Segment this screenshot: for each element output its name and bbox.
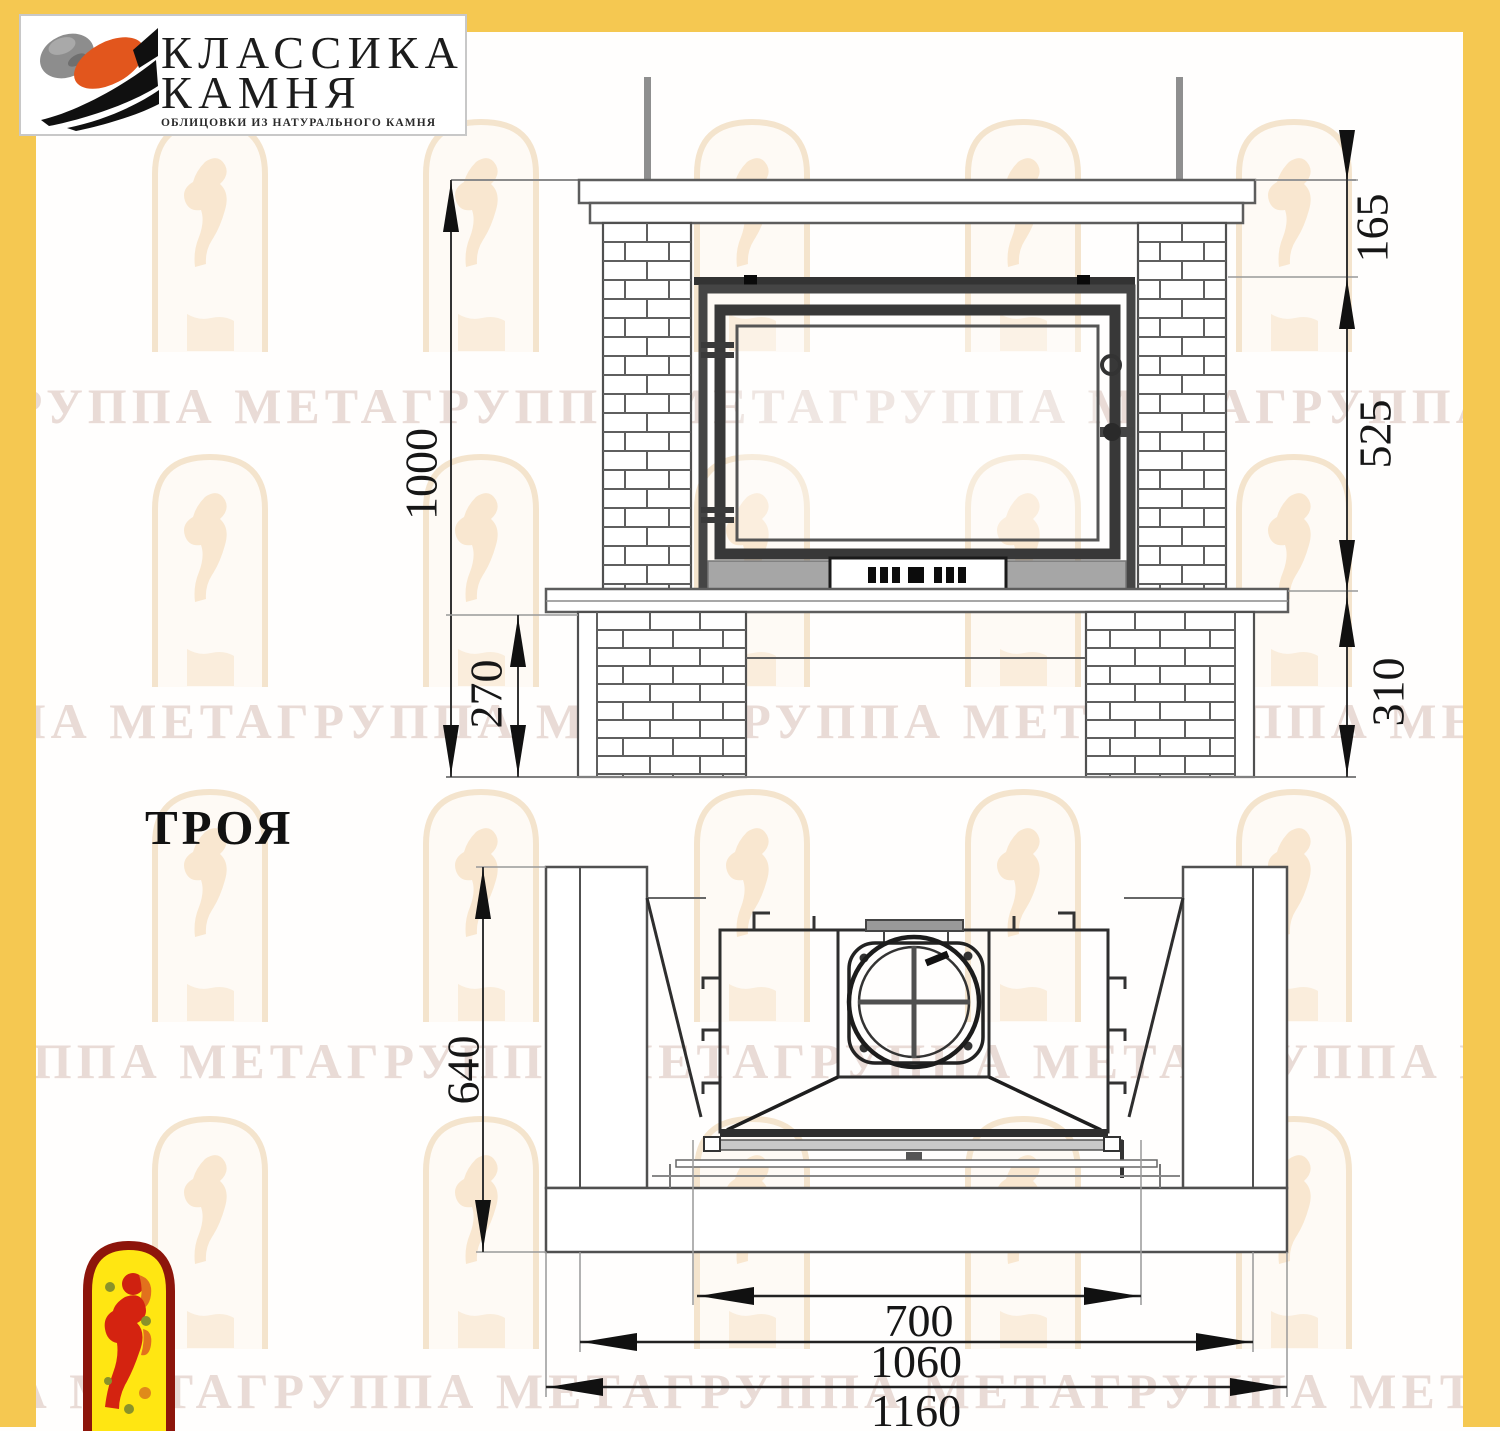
- svg-text:310: 310: [1363, 658, 1414, 727]
- svg-text:525: 525: [1350, 400, 1401, 469]
- svg-text:1160: 1160: [871, 1385, 961, 1427]
- svg-text:640: 640: [438, 1036, 489, 1105]
- svg-text:КАМНЯ: КАМНЯ: [161, 67, 362, 118]
- svg-text:1000: 1000: [396, 428, 447, 520]
- svg-text:270: 270: [461, 660, 512, 729]
- svg-text:165: 165: [1347, 194, 1398, 263]
- svg-text:ОБЛИЦОВКИ ИЗ НАТУРАЛЬНОГО КАМН: ОБЛИЦОВКИ ИЗ НАТУРАЛЬНОГО КАМНЯ: [161, 117, 436, 129]
- svg-text:1060: 1060: [870, 1336, 962, 1387]
